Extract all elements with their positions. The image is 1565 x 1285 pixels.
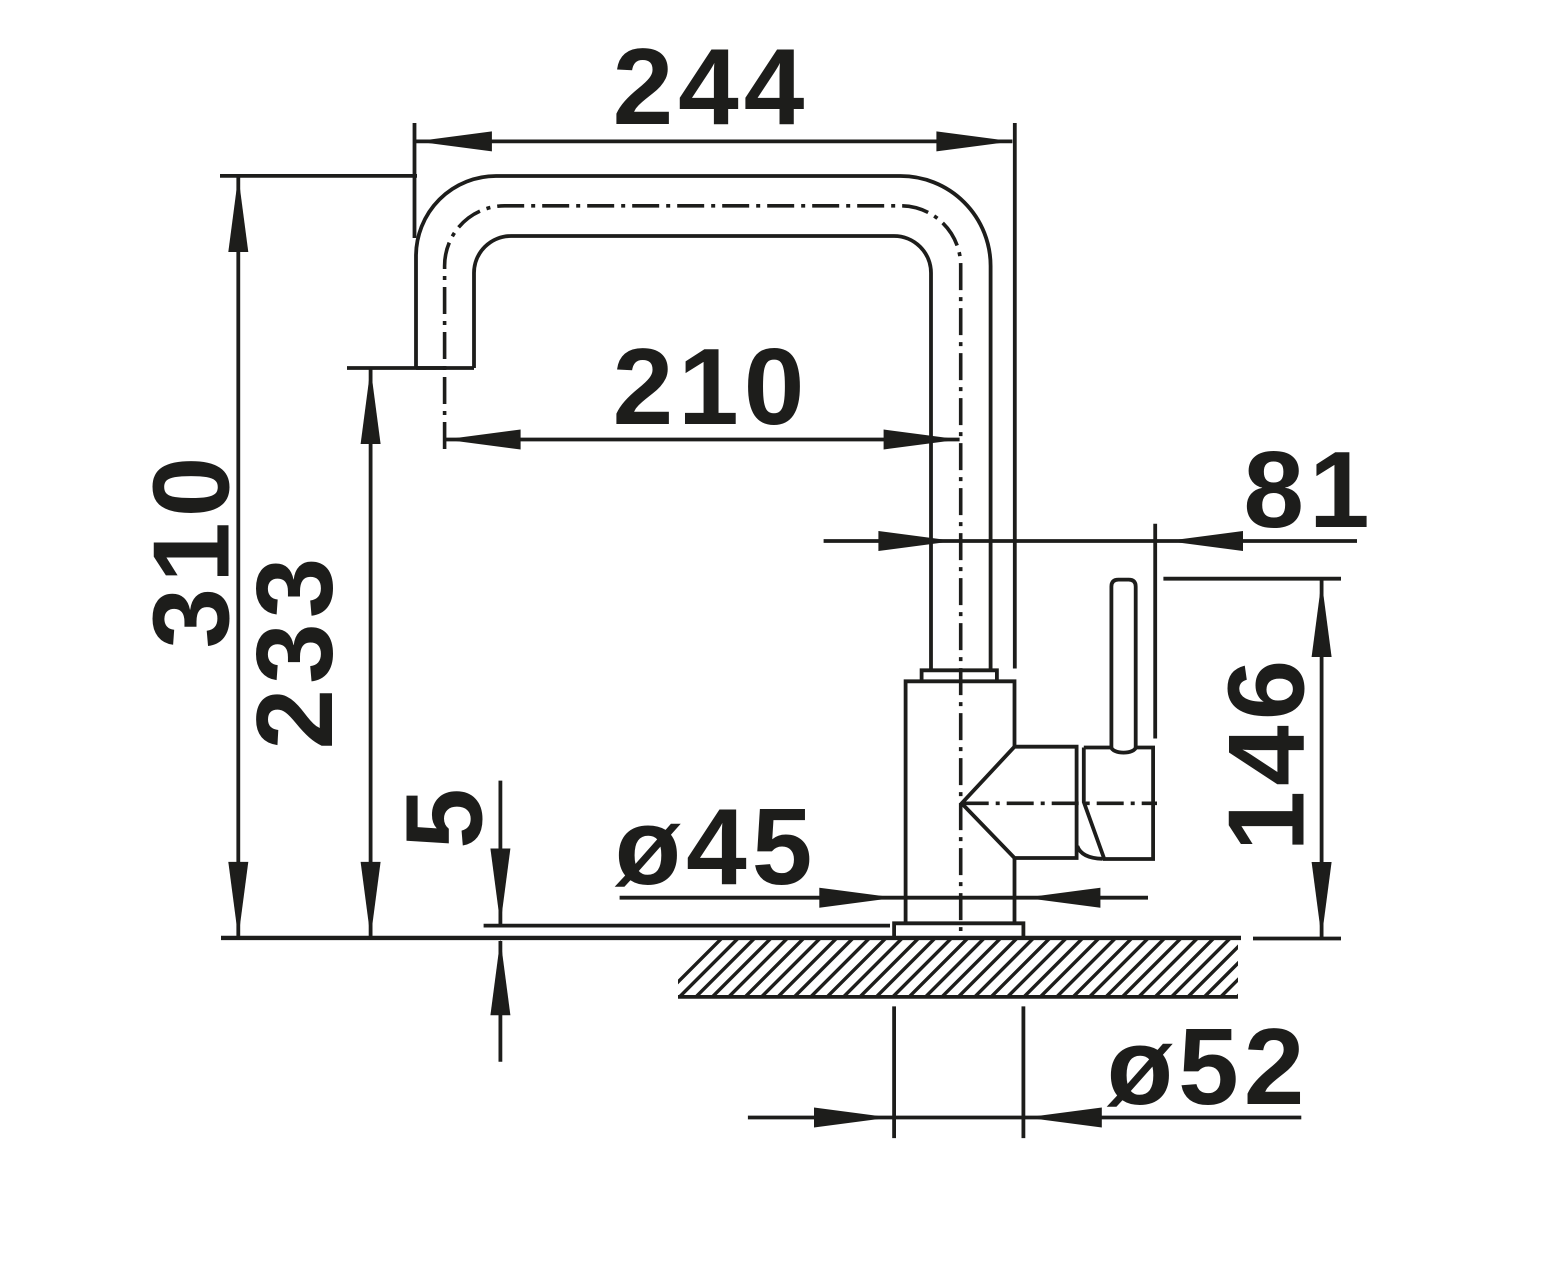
svg-text:146: 146 <box>1206 655 1328 852</box>
svg-text:ø45: ø45 <box>615 786 818 908</box>
svg-text:244: 244 <box>613 26 810 148</box>
svg-text:210: 210 <box>613 326 810 448</box>
svg-text:ø52: ø52 <box>1107 1006 1310 1128</box>
svg-text:5: 5 <box>384 783 506 849</box>
svg-text:81: 81 <box>1243 429 1374 551</box>
svg-text:233: 233 <box>234 553 356 750</box>
